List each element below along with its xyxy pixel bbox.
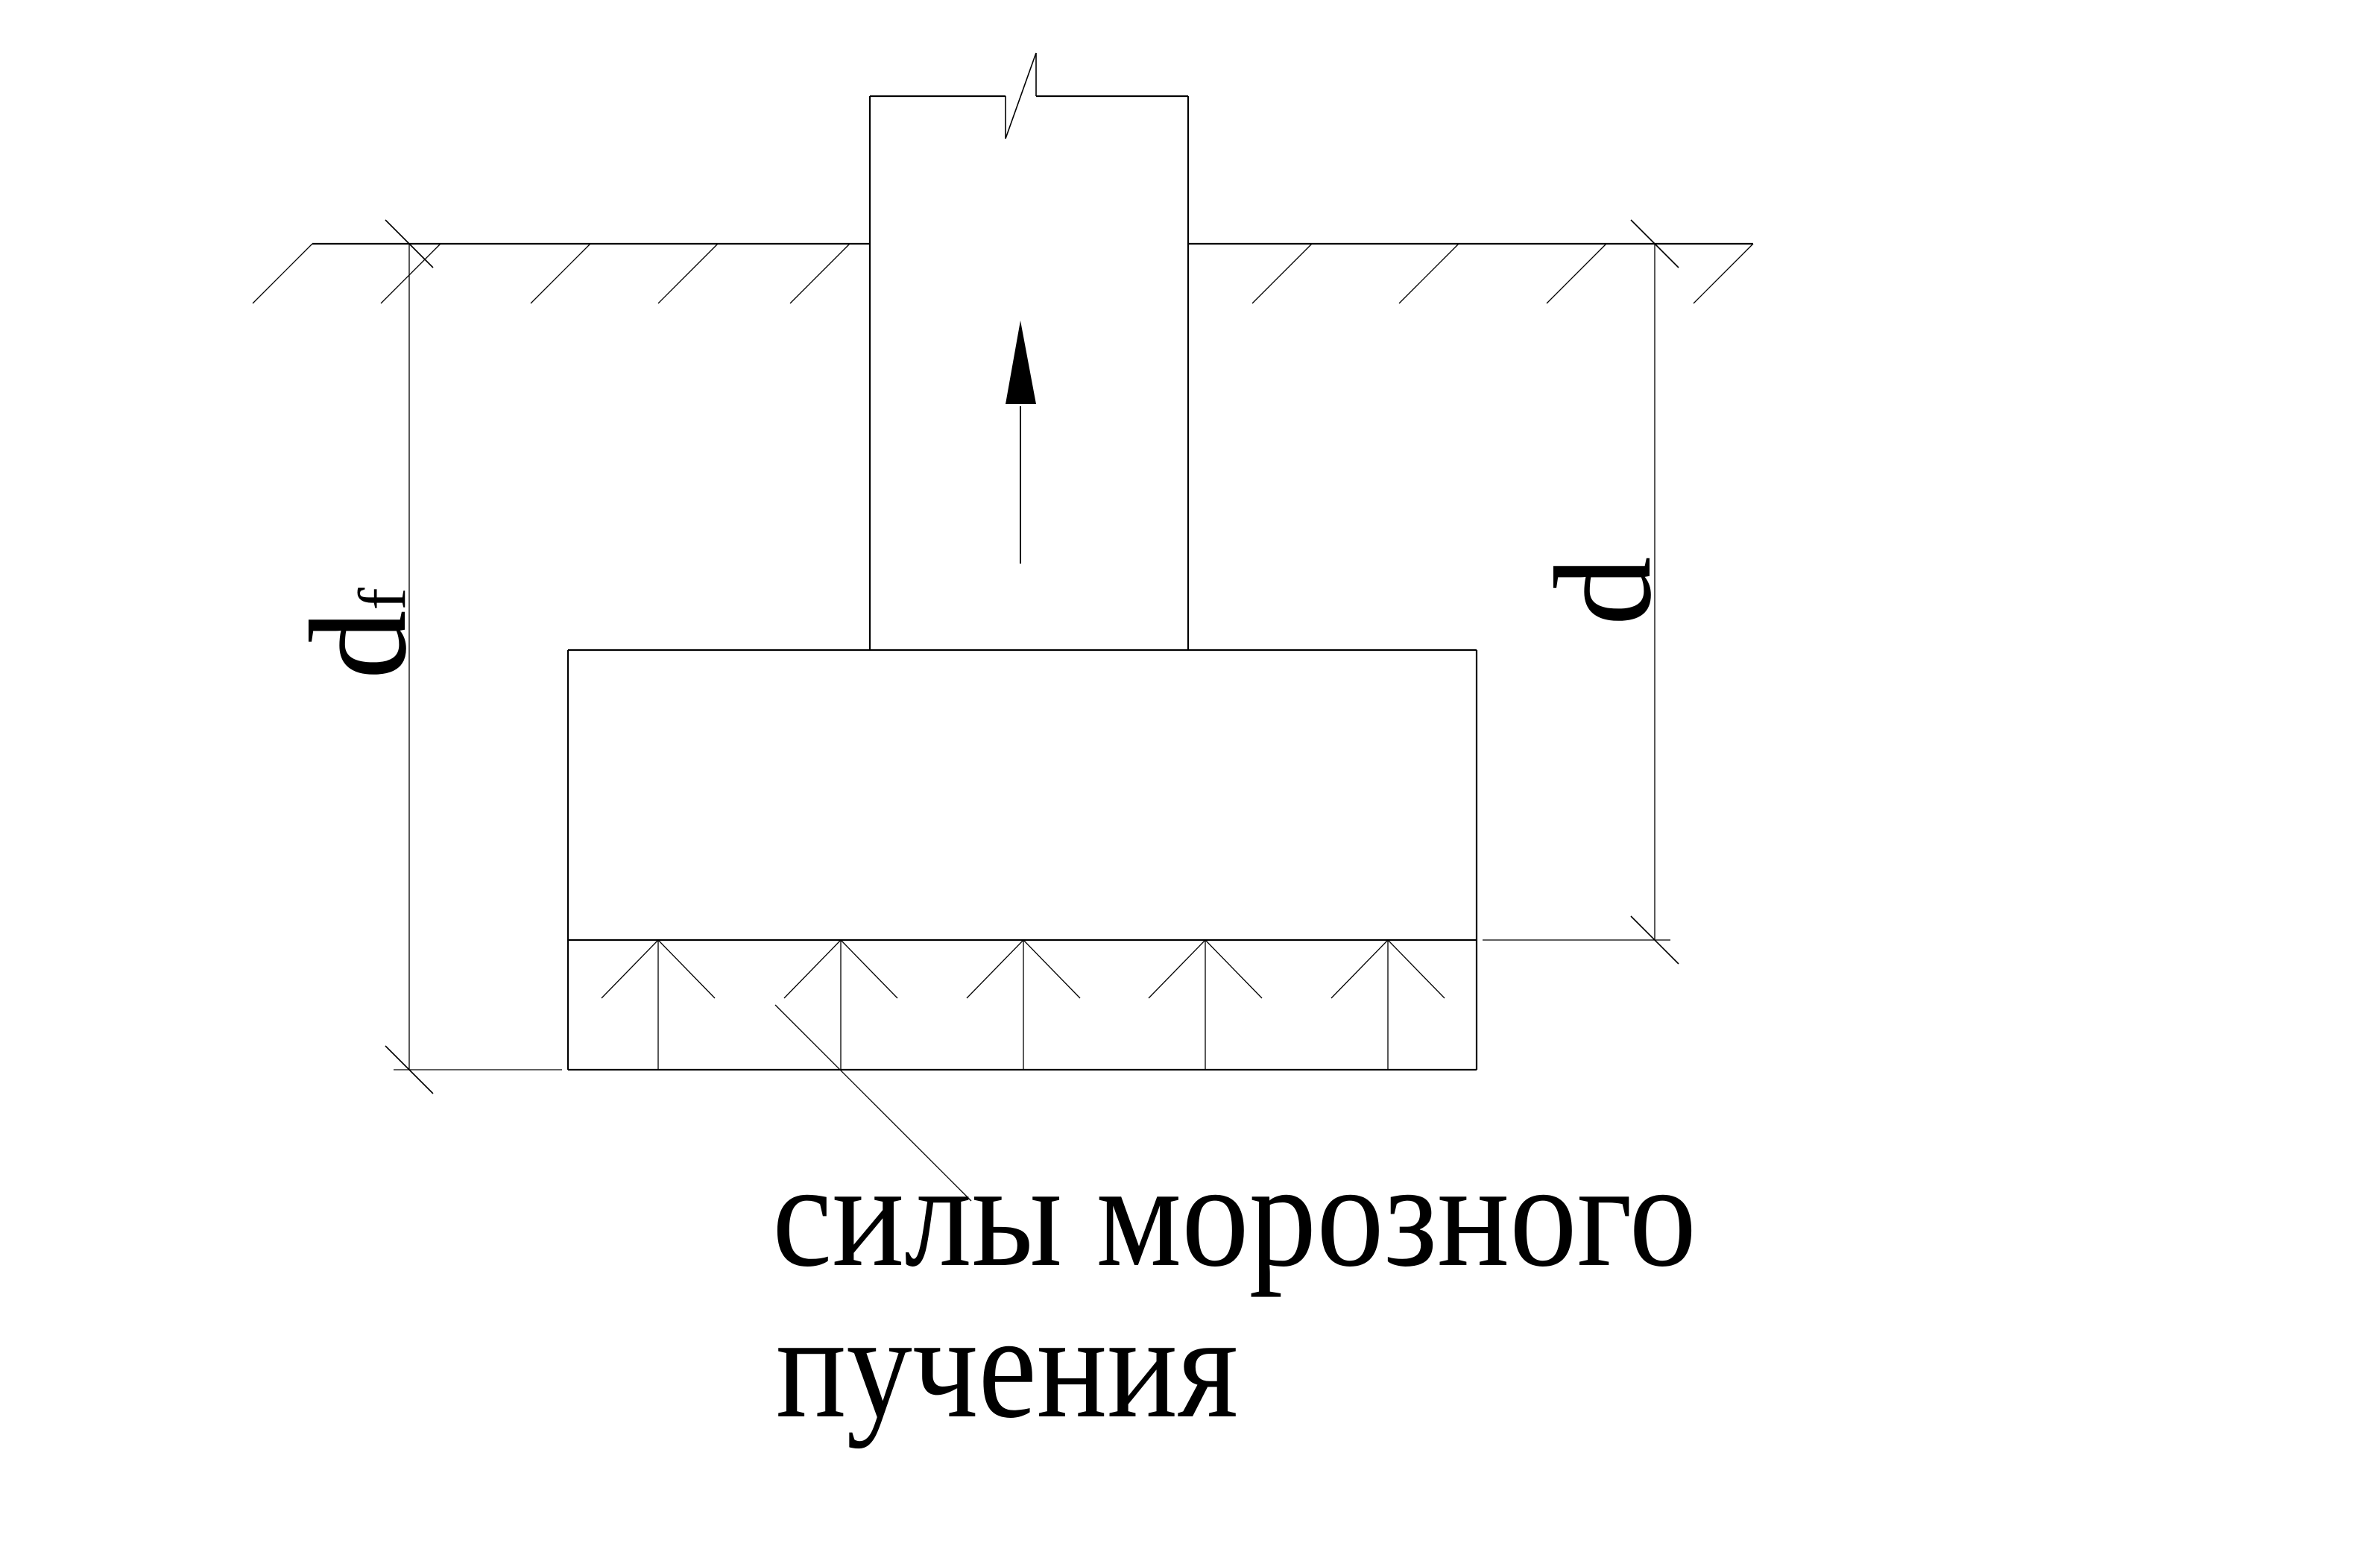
footing xyxy=(568,650,1477,1070)
heave-arrow-right-barb xyxy=(1388,940,1445,998)
foundation-depth-label: d xyxy=(1527,557,1680,626)
heave-arrow-left-barb xyxy=(967,940,1023,998)
heave-arrow-icon xyxy=(1331,940,1445,1070)
caption-group: силы морозного пучения xyxy=(772,1005,1696,1449)
foundation-frost-heave-diagram: df d силы морозного пучения xyxy=(0,0,2380,1558)
caption-line-2: пучения xyxy=(776,1284,1238,1449)
heave-arrow-icon xyxy=(967,940,1080,1070)
heave-arrow-right-barb xyxy=(658,940,715,998)
heave-arrow-icon xyxy=(784,940,897,1070)
frost-depth-label: df xyxy=(282,587,435,679)
heave-arrow-right-barb xyxy=(1023,940,1080,998)
dimension-foundation-depth: d xyxy=(1483,220,1680,964)
ground-hatch xyxy=(1547,244,1606,303)
ground-hatch xyxy=(1252,244,1312,303)
dimension-frost-depth: df xyxy=(282,220,562,1094)
frost-depth-label-main: d xyxy=(282,610,435,679)
heave-arrow-left-barb xyxy=(1149,940,1205,998)
ground-hatch xyxy=(790,244,850,303)
ground-hatch xyxy=(1694,244,1753,303)
ground-hatch xyxy=(381,244,441,303)
heave-arrow-left-barb xyxy=(602,940,658,998)
heave-arrow-right-barb xyxy=(841,940,897,998)
ground-hatch xyxy=(253,244,312,303)
frost-depth-label-subscript: f xyxy=(346,587,420,610)
ground-hatch xyxy=(531,244,590,303)
frost-heave-arrows xyxy=(602,940,1445,1070)
break-symbol-diagonal xyxy=(1006,53,1036,139)
ground-hatch xyxy=(658,244,718,303)
foundation-column xyxy=(870,53,1188,650)
ground-hatch xyxy=(1399,244,1459,303)
heave-arrow-icon xyxy=(1149,940,1262,1070)
heave-arrow-right-barb xyxy=(1205,940,1262,998)
heave-arrow-left-barb xyxy=(1331,940,1388,998)
break-symbol xyxy=(1006,53,1036,139)
ground-surface xyxy=(253,244,1753,303)
heave-arrow-icon xyxy=(602,940,715,1070)
uplift-arrow-head xyxy=(1006,321,1036,404)
heave-arrow-left-barb xyxy=(784,940,841,998)
caption-line-1: силы морозного xyxy=(772,1133,1696,1298)
uplift-arrow-icon xyxy=(1006,321,1036,564)
